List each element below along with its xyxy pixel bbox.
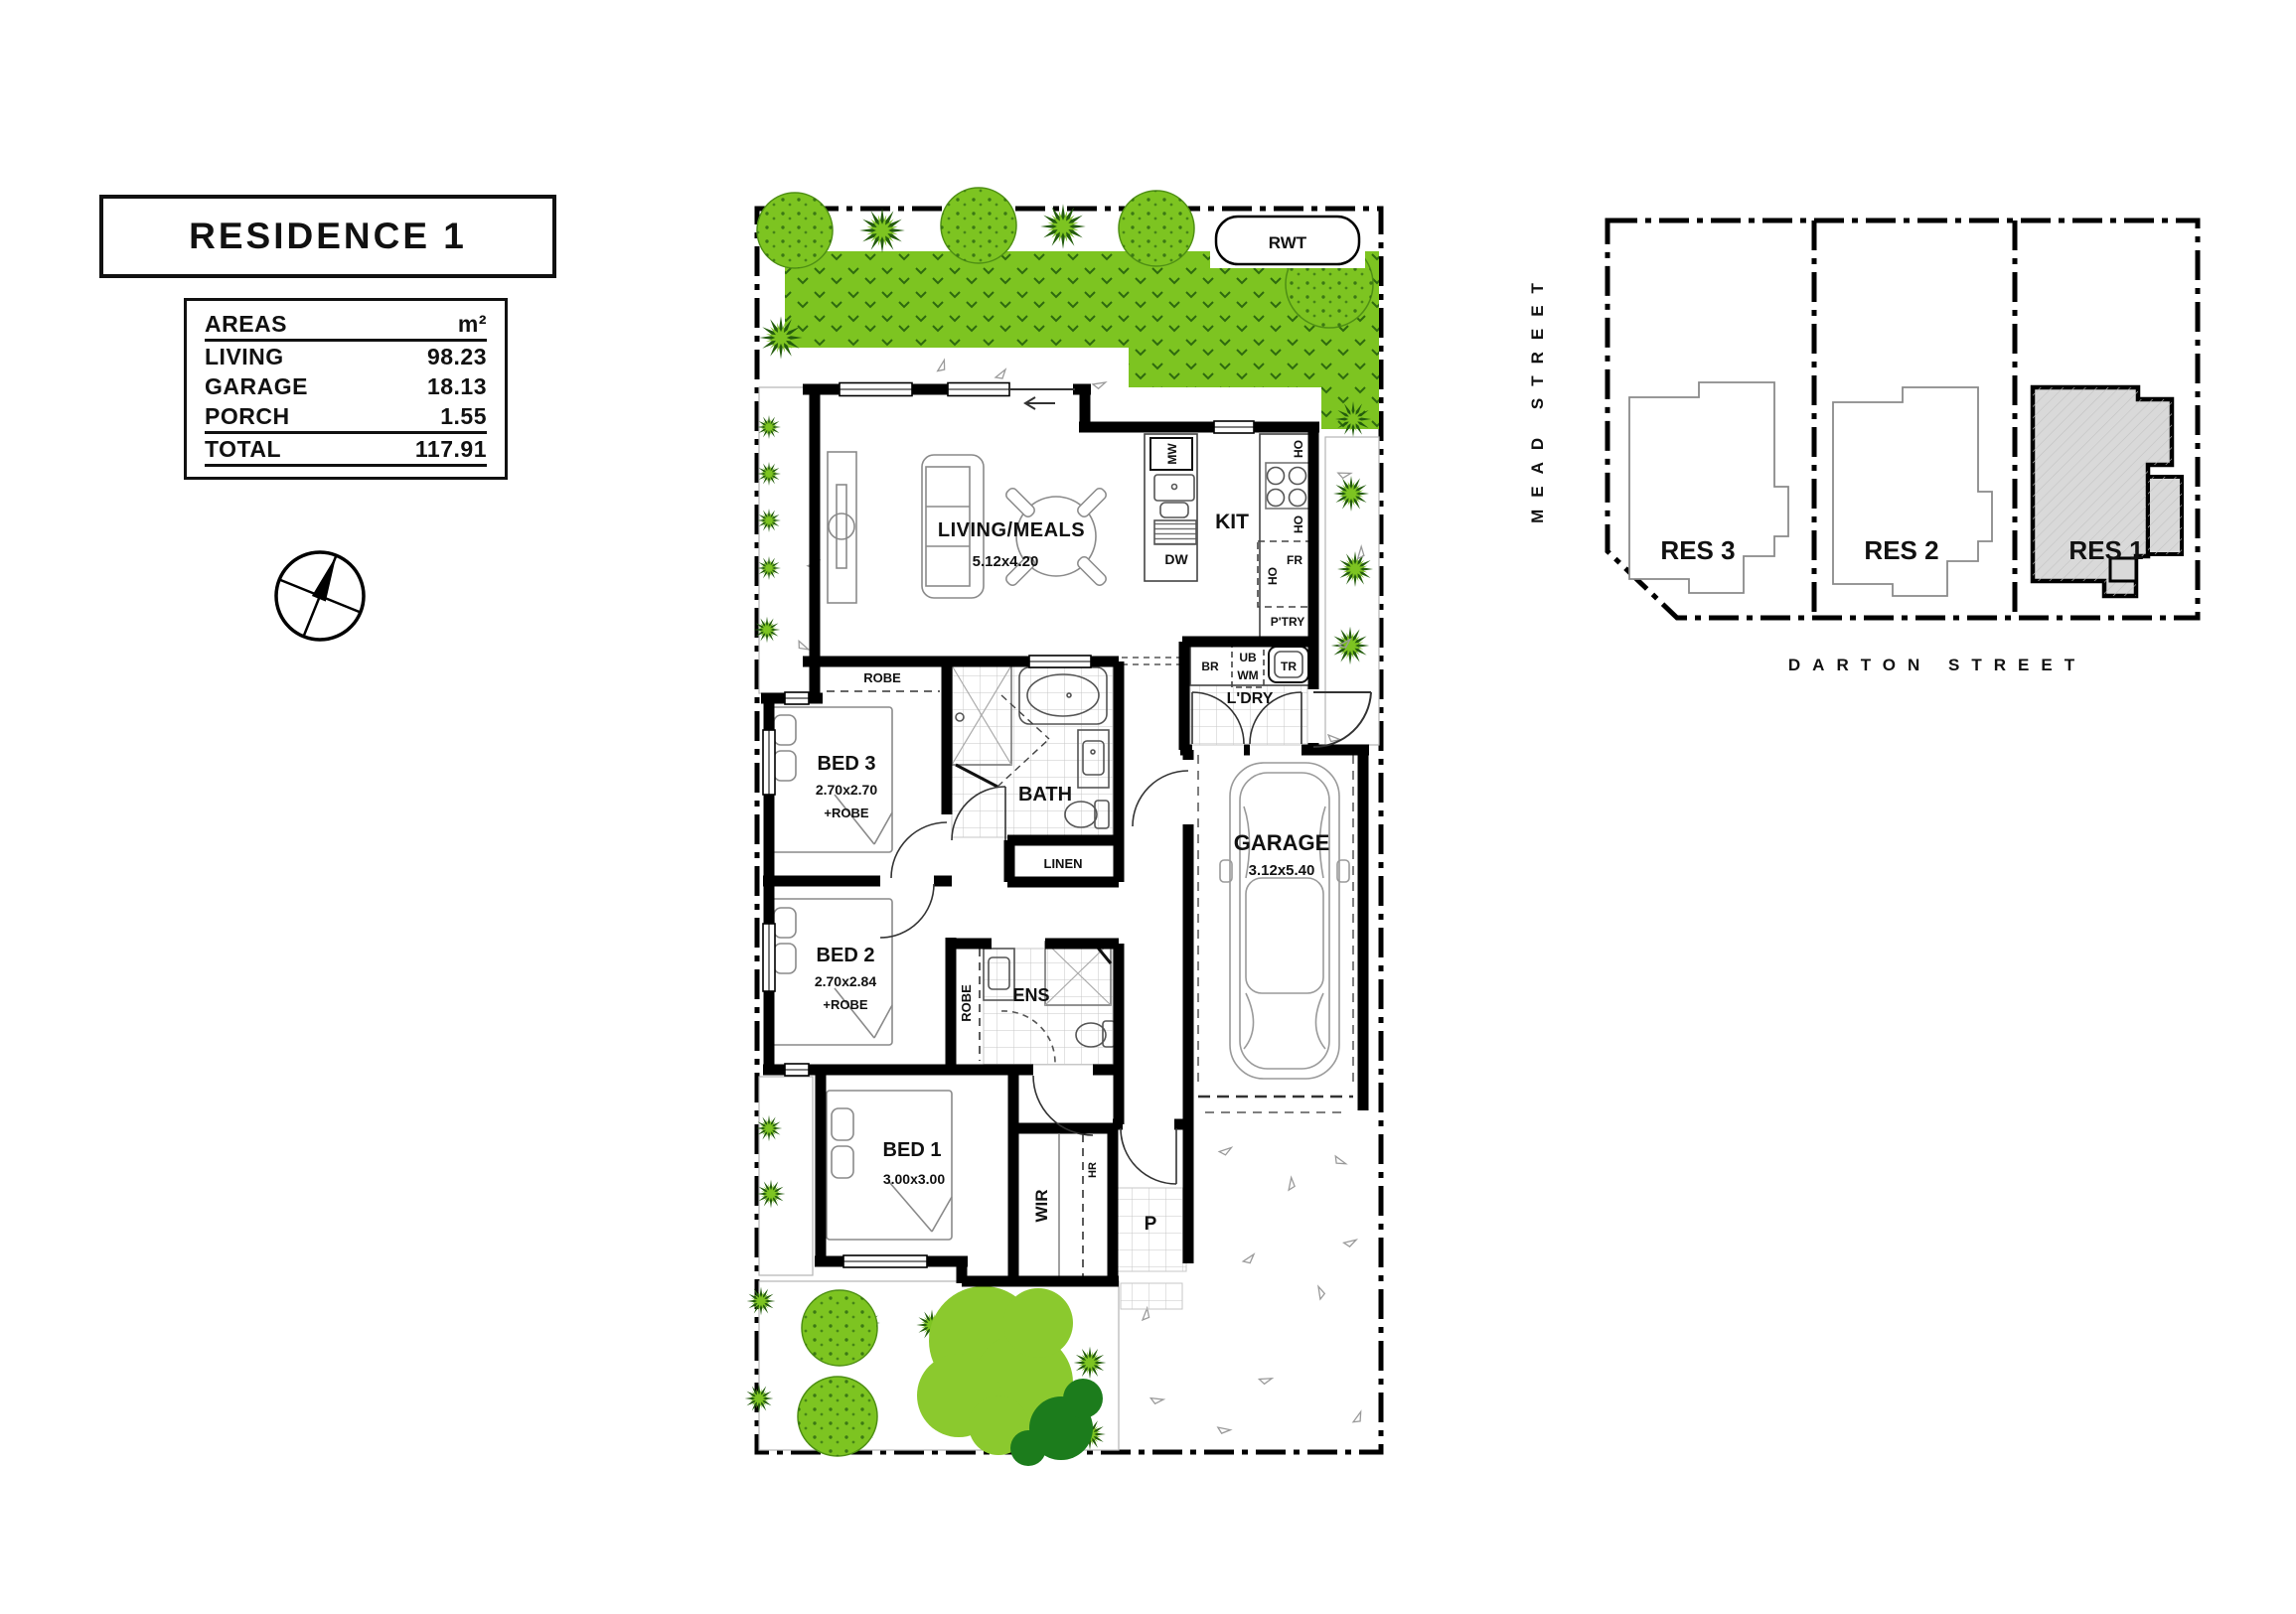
bed2-dims: 2.70x2.84 bbox=[815, 973, 876, 989]
floorplan-page: RESIDENCE 1 AREAS m² LIVING 98.23 GARAGE… bbox=[0, 0, 2296, 1614]
bed1-furniture bbox=[827, 1091, 952, 1240]
darton-street-label: DARTON STREET bbox=[1788, 656, 2086, 674]
bed3-furniture bbox=[769, 707, 892, 852]
res2-label: RES 2 bbox=[1864, 535, 1938, 565]
fr-label: FR bbox=[1287, 553, 1302, 567]
garden-beds bbox=[759, 387, 1379, 1450]
bed2-label: BED 2 bbox=[817, 945, 875, 966]
dw-label: DW bbox=[1164, 551, 1188, 567]
bed3-label: BED 3 bbox=[818, 753, 876, 775]
wm-label: WM bbox=[1237, 668, 1258, 682]
garage-dims: 3.12x5.40 bbox=[1249, 862, 1315, 879]
mw-label: MW bbox=[1165, 443, 1179, 465]
compass-icon bbox=[263, 539, 378, 654]
site-plan: RES 3 RES 2 RES 1 MEAD STREET DARTON STR… bbox=[1528, 220, 2198, 674]
kit-label: KIT bbox=[1215, 511, 1249, 533]
res3-label: RES 3 bbox=[1660, 535, 1735, 565]
entry-arrow-icon bbox=[1025, 397, 1055, 409]
ho-label-3: HO bbox=[1266, 567, 1280, 585]
linen-label: LINEN bbox=[1044, 856, 1083, 871]
bed2-robe: +ROBE bbox=[823, 997, 867, 1012]
mead-street-label: MEAD STREET bbox=[1528, 271, 1547, 523]
bed1-dims: 3.00x3.00 bbox=[883, 1171, 945, 1187]
garage-label: GARAGE bbox=[1234, 830, 1330, 855]
plan-drawing: RWT LIVING/MEALS 5.12x4.20 KIT MW DW HO … bbox=[0, 0, 2296, 1614]
kitchen-bench bbox=[1258, 434, 1313, 644]
bed2-furniture bbox=[769, 899, 892, 1045]
car-icon bbox=[1220, 763, 1349, 1079]
ho-label-1: HO bbox=[1292, 440, 1305, 458]
ub-label: UB bbox=[1239, 651, 1257, 664]
res1-label: RES 1 bbox=[2068, 535, 2143, 565]
tr-label: TR bbox=[1281, 660, 1297, 673]
robe2-label: ROBE bbox=[959, 984, 974, 1022]
wir-label: WIR bbox=[1032, 1189, 1051, 1222]
tv-unit bbox=[828, 452, 856, 603]
bath-label: BATH bbox=[1018, 784, 1072, 806]
living-dims: 5.12x4.20 bbox=[973, 553, 1039, 570]
living-label: LIVING/MEALS bbox=[938, 519, 1085, 541]
ho-label-2: HO bbox=[1292, 515, 1305, 533]
ldry-label: L'DRY bbox=[1227, 690, 1274, 707]
pantry-label: P'TRY bbox=[1271, 615, 1304, 629]
porch-label: P bbox=[1145, 1214, 1157, 1235]
bed3-robe: +ROBE bbox=[824, 806, 868, 820]
robe3-label: ROBE bbox=[863, 670, 901, 685]
bed1-label: BED 1 bbox=[883, 1139, 942, 1161]
hr-label: HR bbox=[1087, 1162, 1099, 1178]
ens-label: ENS bbox=[1012, 985, 1049, 1005]
bed3-dims: 2.70x2.70 bbox=[816, 782, 877, 798]
tiled-floors bbox=[952, 666, 1307, 1309]
br-label: BR bbox=[1201, 660, 1219, 673]
rwt-label: RWT bbox=[1269, 233, 1307, 252]
